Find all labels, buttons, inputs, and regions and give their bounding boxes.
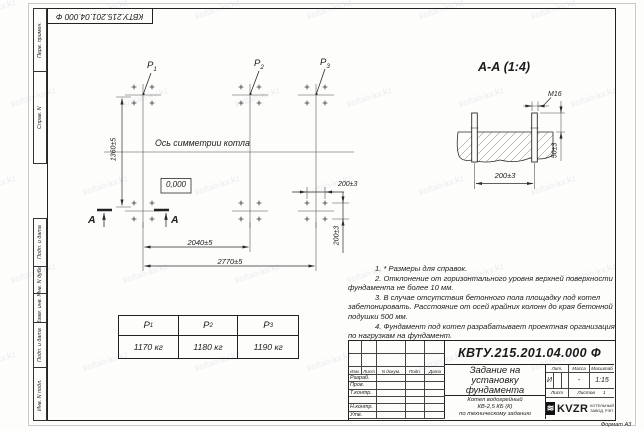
corner-designation-text: КВТУ.215.201.04.000 Ф — [56, 12, 143, 21]
section-letter-a1: А — [88, 214, 96, 226]
lit-mass-scale-values: И - 1:15 — [546, 373, 614, 389]
margin-stamp-group-top: Перв. примен. Справ. N — [33, 8, 47, 164]
point-label-p1: P1 — [147, 60, 157, 73]
technical-notes: 1. * Размеры для справок. 2. Отклонение … — [348, 264, 636, 341]
sheets-value: 1 — [603, 391, 606, 396]
note-line: забетонировать. Расстояние от осей крайн… — [348, 302, 636, 312]
title-block: Изм. Лист N докум. Подп. Дата Разраб. Пр… — [348, 340, 616, 421]
document-title: Задание на установку фундамента — [445, 365, 546, 396]
load-value-p1: 1170 кг — [119, 336, 179, 358]
dim-200-top-right: 200±3 — [338, 181, 357, 188]
sheet-label: Лист — [546, 389, 569, 398]
level-mark-value: 0,000 — [161, 180, 191, 189]
dim-2040: 2040±5 — [172, 238, 228, 247]
kvzr-logo-icon: ≋ — [546, 402, 555, 415]
scale-value: 1:15 — [590, 373, 614, 389]
margin-label-sprav-n: Справ. N — [34, 71, 46, 164]
section-letter-a2: А — [171, 214, 179, 226]
mass-label: Масса — [569, 365, 590, 373]
bolt-thread-label: М16 — [548, 91, 562, 98]
load-table: P1 P2 P3 1170 кг 1180 кг 1190 кг — [118, 315, 299, 359]
margin-label-inv-podl: Инв. N подл. — [34, 367, 46, 422]
note-line: 2. Отклонение от горизонтального уровня … — [348, 274, 636, 284]
dim-1360: 1360±5 — [111, 130, 118, 170]
note-line: подушки 500 мм. — [348, 312, 636, 322]
margin-label-perv-primen: Перв. примен. — [34, 9, 46, 71]
load-value-p3: 1190 кг — [238, 336, 298, 358]
kvzr-logo-subtitle: КОТЕЛЬНЫЙ ЗАВОД, РЭП — [590, 404, 614, 413]
lit-mass-scale-header: Лит. Масса Масштаб — [546, 365, 614, 373]
format-label: Формат А3 — [590, 422, 642, 428]
lit-label: Лит. — [546, 365, 569, 373]
margin-stamp-group-bottom: Подп. и дата Инв. N дубл. Взам. инв. N П… — [33, 218, 47, 421]
scale-label: Масштаб — [590, 365, 614, 373]
load-table-header-p3: P3 — [238, 316, 298, 336]
sig-prov: Пров. — [349, 382, 377, 389]
hdr-izm: Изм. — [349, 367, 362, 375]
dim-200-right-vertical: 200±3 — [334, 218, 341, 254]
sig-empty — [349, 397, 377, 404]
margin-label-podp-data-2: Подп. и дата — [34, 322, 46, 367]
hdr-podp: Подп. — [406, 367, 425, 375]
margin-label-inv-dubl: Инв. N дубл. — [34, 266, 46, 293]
dim-50-protrusion: 50±3 — [552, 136, 559, 166]
margin-label-podp-data-1: Подп. и дата — [34, 219, 46, 266]
symmetry-axis-label: Ось симметрии котла — [155, 138, 250, 148]
point-label-p3: P3 — [320, 57, 330, 70]
lit-value: И — [546, 373, 554, 389]
note-line: 1. * Размеры для справок. — [348, 264, 636, 274]
hdr-data: Дата — [425, 367, 445, 375]
sheet-count-row: Лист Листов1 — [546, 389, 614, 398]
document-designation: КВТУ.215.201.04.000 Ф — [445, 341, 614, 365]
mass-value: - — [569, 373, 590, 389]
sig-nkontr: Н.контр. — [349, 404, 377, 411]
point-label-p2: P2 — [254, 58, 264, 71]
note-line: фундамента не более 10 мм. — [348, 283, 636, 293]
hdr-ndoc: N докум. — [377, 367, 406, 375]
change-record-grid: Изм. Лист N докум. Подп. Дата — [349, 341, 445, 375]
sig-utv: Утв. — [349, 412, 377, 419]
kvzr-logo-text: KVZR — [557, 403, 588, 415]
sig-razrab: Разраб. — [349, 375, 377, 382]
section-view-title: А-А (1:4) — [478, 60, 530, 74]
note-line: 3. В случае отсутствия бетонного пола пл… — [348, 293, 636, 303]
load-table-header-p2: P2 — [179, 316, 239, 336]
load-table-header-p1: P1 — [119, 316, 179, 336]
dim-200-section: 200±3 — [488, 171, 522, 180]
drawing-sheet: kotlah-kv.kzkotlah-kv.kzkotlah-kv.kzkotl… — [0, 0, 644, 430]
hdr-list: Лист — [362, 367, 377, 375]
product-name: Котел водогрейный КВ-2,5 КБ (К) по техни… — [445, 396, 546, 419]
margin-label-vzam-inv: Взам. инв. N — [34, 293, 46, 322]
signature-grid: Разраб. Пров. Т.контр. Н.контр. Утв. — [349, 375, 445, 419]
sheets-label: Листов — [577, 391, 594, 396]
note-line: 4. Фундамент под котел разрабатывает про… — [348, 322, 636, 332]
manufacturer-logo: ≋ KVZR КОТЕЛЬНЫЙ ЗАВОД, РЭП — [546, 398, 614, 419]
corner-designation-stamp: КВТУ.215.201.04.000 Ф — [47, 8, 153, 24]
load-value-p2: 1180 кг — [179, 336, 239, 358]
dim-2770: 2770±5 — [202, 257, 258, 266]
sig-tkontr: Т.контр. — [349, 390, 377, 397]
